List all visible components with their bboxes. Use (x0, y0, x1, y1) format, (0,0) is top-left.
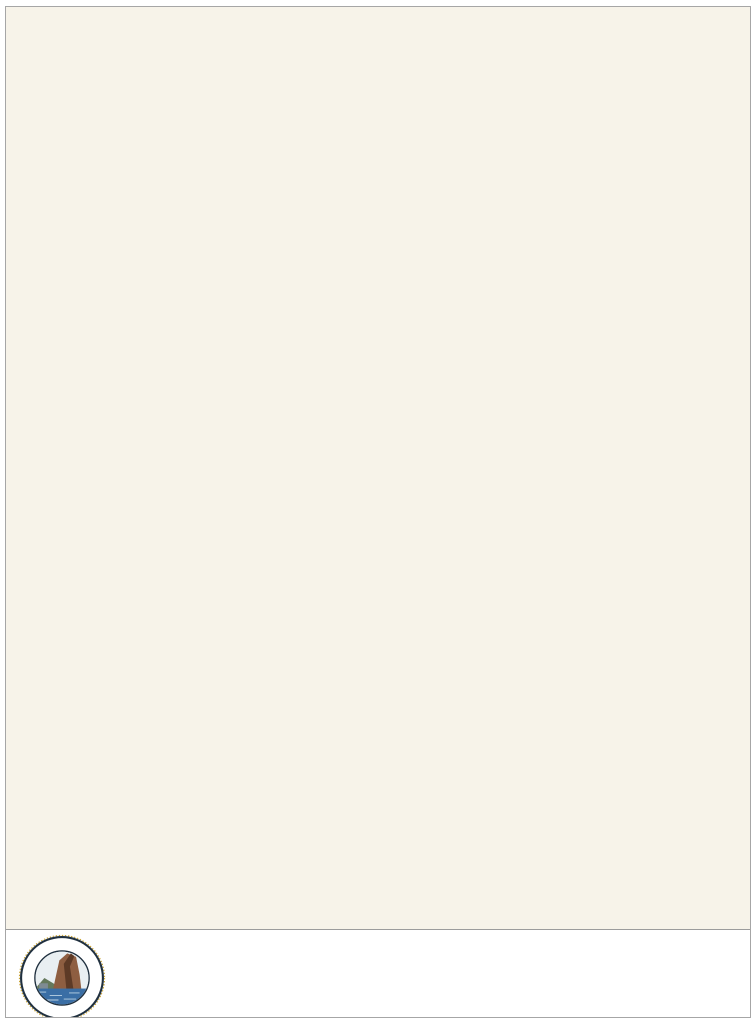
map-labels-layer (6, 7, 750, 929)
footer (6, 930, 750, 1017)
parcel-map[interactable] (6, 7, 750, 930)
yavapai-county-seal-icon (18, 934, 106, 1018)
printed-parcel-map-page (5, 6, 751, 1018)
